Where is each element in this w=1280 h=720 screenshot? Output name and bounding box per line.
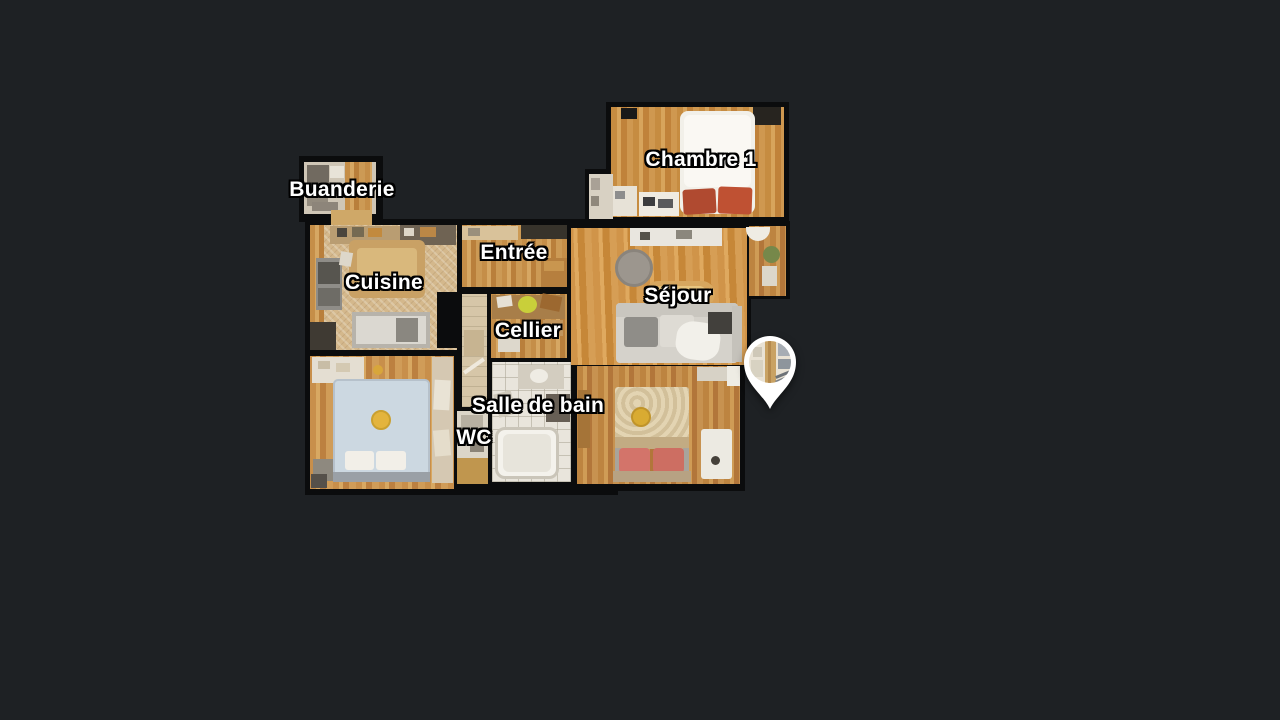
shelf-item: [468, 228, 480, 236]
room-floor-salle-de-bain[interactable]: [492, 362, 571, 482]
room-label-wc[interactable]: WC: [456, 426, 492, 450]
closet-door: [433, 429, 451, 456]
counter-item: [352, 227, 364, 237]
white-pillow: [345, 451, 374, 470]
shelf-item: [336, 363, 350, 372]
room-label-salle-de-bain[interactable]: Salle de bain: [472, 394, 604, 418]
white-pillow: [376, 451, 406, 470]
shelf-unit: [762, 266, 777, 286]
room-label-entree[interactable]: Entrée: [480, 241, 547, 265]
dark-wardrobe: [753, 107, 781, 125]
half-round-table: [746, 227, 770, 241]
wc-wood-floor: [457, 458, 488, 484]
sideboard-item: [676, 230, 692, 239]
island-item: [396, 318, 418, 342]
counter-item: [337, 228, 347, 237]
hallway-item: [464, 330, 484, 356]
bed-footboard: [613, 471, 691, 482]
chair: [339, 251, 353, 267]
laundry-basket: [330, 166, 344, 178]
sejour-right-shelf-floor: [749, 226, 786, 296]
cabinet-item: [615, 191, 625, 199]
pink-pillow: [653, 448, 684, 473]
yellow-item: [518, 296, 537, 313]
room-label-cellier[interactable]: Cellier: [495, 319, 561, 343]
bed-footboard: [333, 472, 430, 482]
sofa-cushion-dark: [624, 317, 658, 347]
hallway-floor[interactable]: [462, 294, 487, 407]
room-label-buanderie[interactable]: Buanderie: [289, 178, 394, 202]
dresser-item: [658, 199, 673, 208]
desk-knob: [711, 456, 720, 465]
alcove-item: [591, 178, 600, 190]
sink: [530, 369, 548, 383]
stove: [318, 262, 340, 284]
storage-item: [496, 295, 512, 308]
white-desk: [701, 429, 732, 479]
room-floor-chambre-2[interactable]: [310, 356, 454, 489]
dresser-item: [643, 197, 655, 206]
bed-yellow-circle: [371, 410, 391, 430]
dark-object: [311, 474, 327, 488]
viewer-canvas[interactable]: Buanderie Chambre 1 Cuisine Entrée Séjou…: [0, 0, 1280, 720]
open-door: [463, 357, 485, 374]
yellow-dot-decor: [373, 365, 383, 375]
shelf-item: [404, 228, 414, 236]
closet-strip: [432, 357, 453, 483]
oven: [318, 288, 340, 306]
round-side-table: [615, 249, 653, 287]
bed-patterned-duvet: [615, 387, 689, 441]
red-pillow: [718, 186, 753, 214]
room-label-sejour[interactable]: Séjour: [644, 284, 711, 308]
closet-door: [433, 380, 451, 411]
dark-corner-object: [621, 108, 637, 119]
room-label-cuisine[interactable]: Cuisine: [345, 271, 423, 295]
panorama-pin[interactable]: [739, 333, 801, 411]
dark-cabinet: [521, 225, 567, 239]
chambre1-alcove: [589, 174, 613, 219]
alcove-item: [591, 196, 599, 206]
bed-yellow-circle: [631, 407, 651, 427]
wall-cuisine-corner: [437, 292, 457, 348]
side-table-dark: [708, 312, 734, 334]
sideboard-item: [640, 232, 650, 240]
plant: [763, 246, 780, 263]
dark-corner-clutter: [310, 322, 336, 350]
shelf-item: [420, 227, 436, 237]
pink-pillow: [619, 448, 650, 473]
room-label-chambre-1[interactable]: Chambre 1: [645, 148, 756, 172]
red-pillow: [682, 188, 716, 215]
shelf-item: [318, 361, 330, 369]
room-floor-chambre-3[interactable]: [577, 366, 740, 484]
bathtub-inner: [503, 434, 551, 472]
counter-item: [368, 228, 382, 237]
